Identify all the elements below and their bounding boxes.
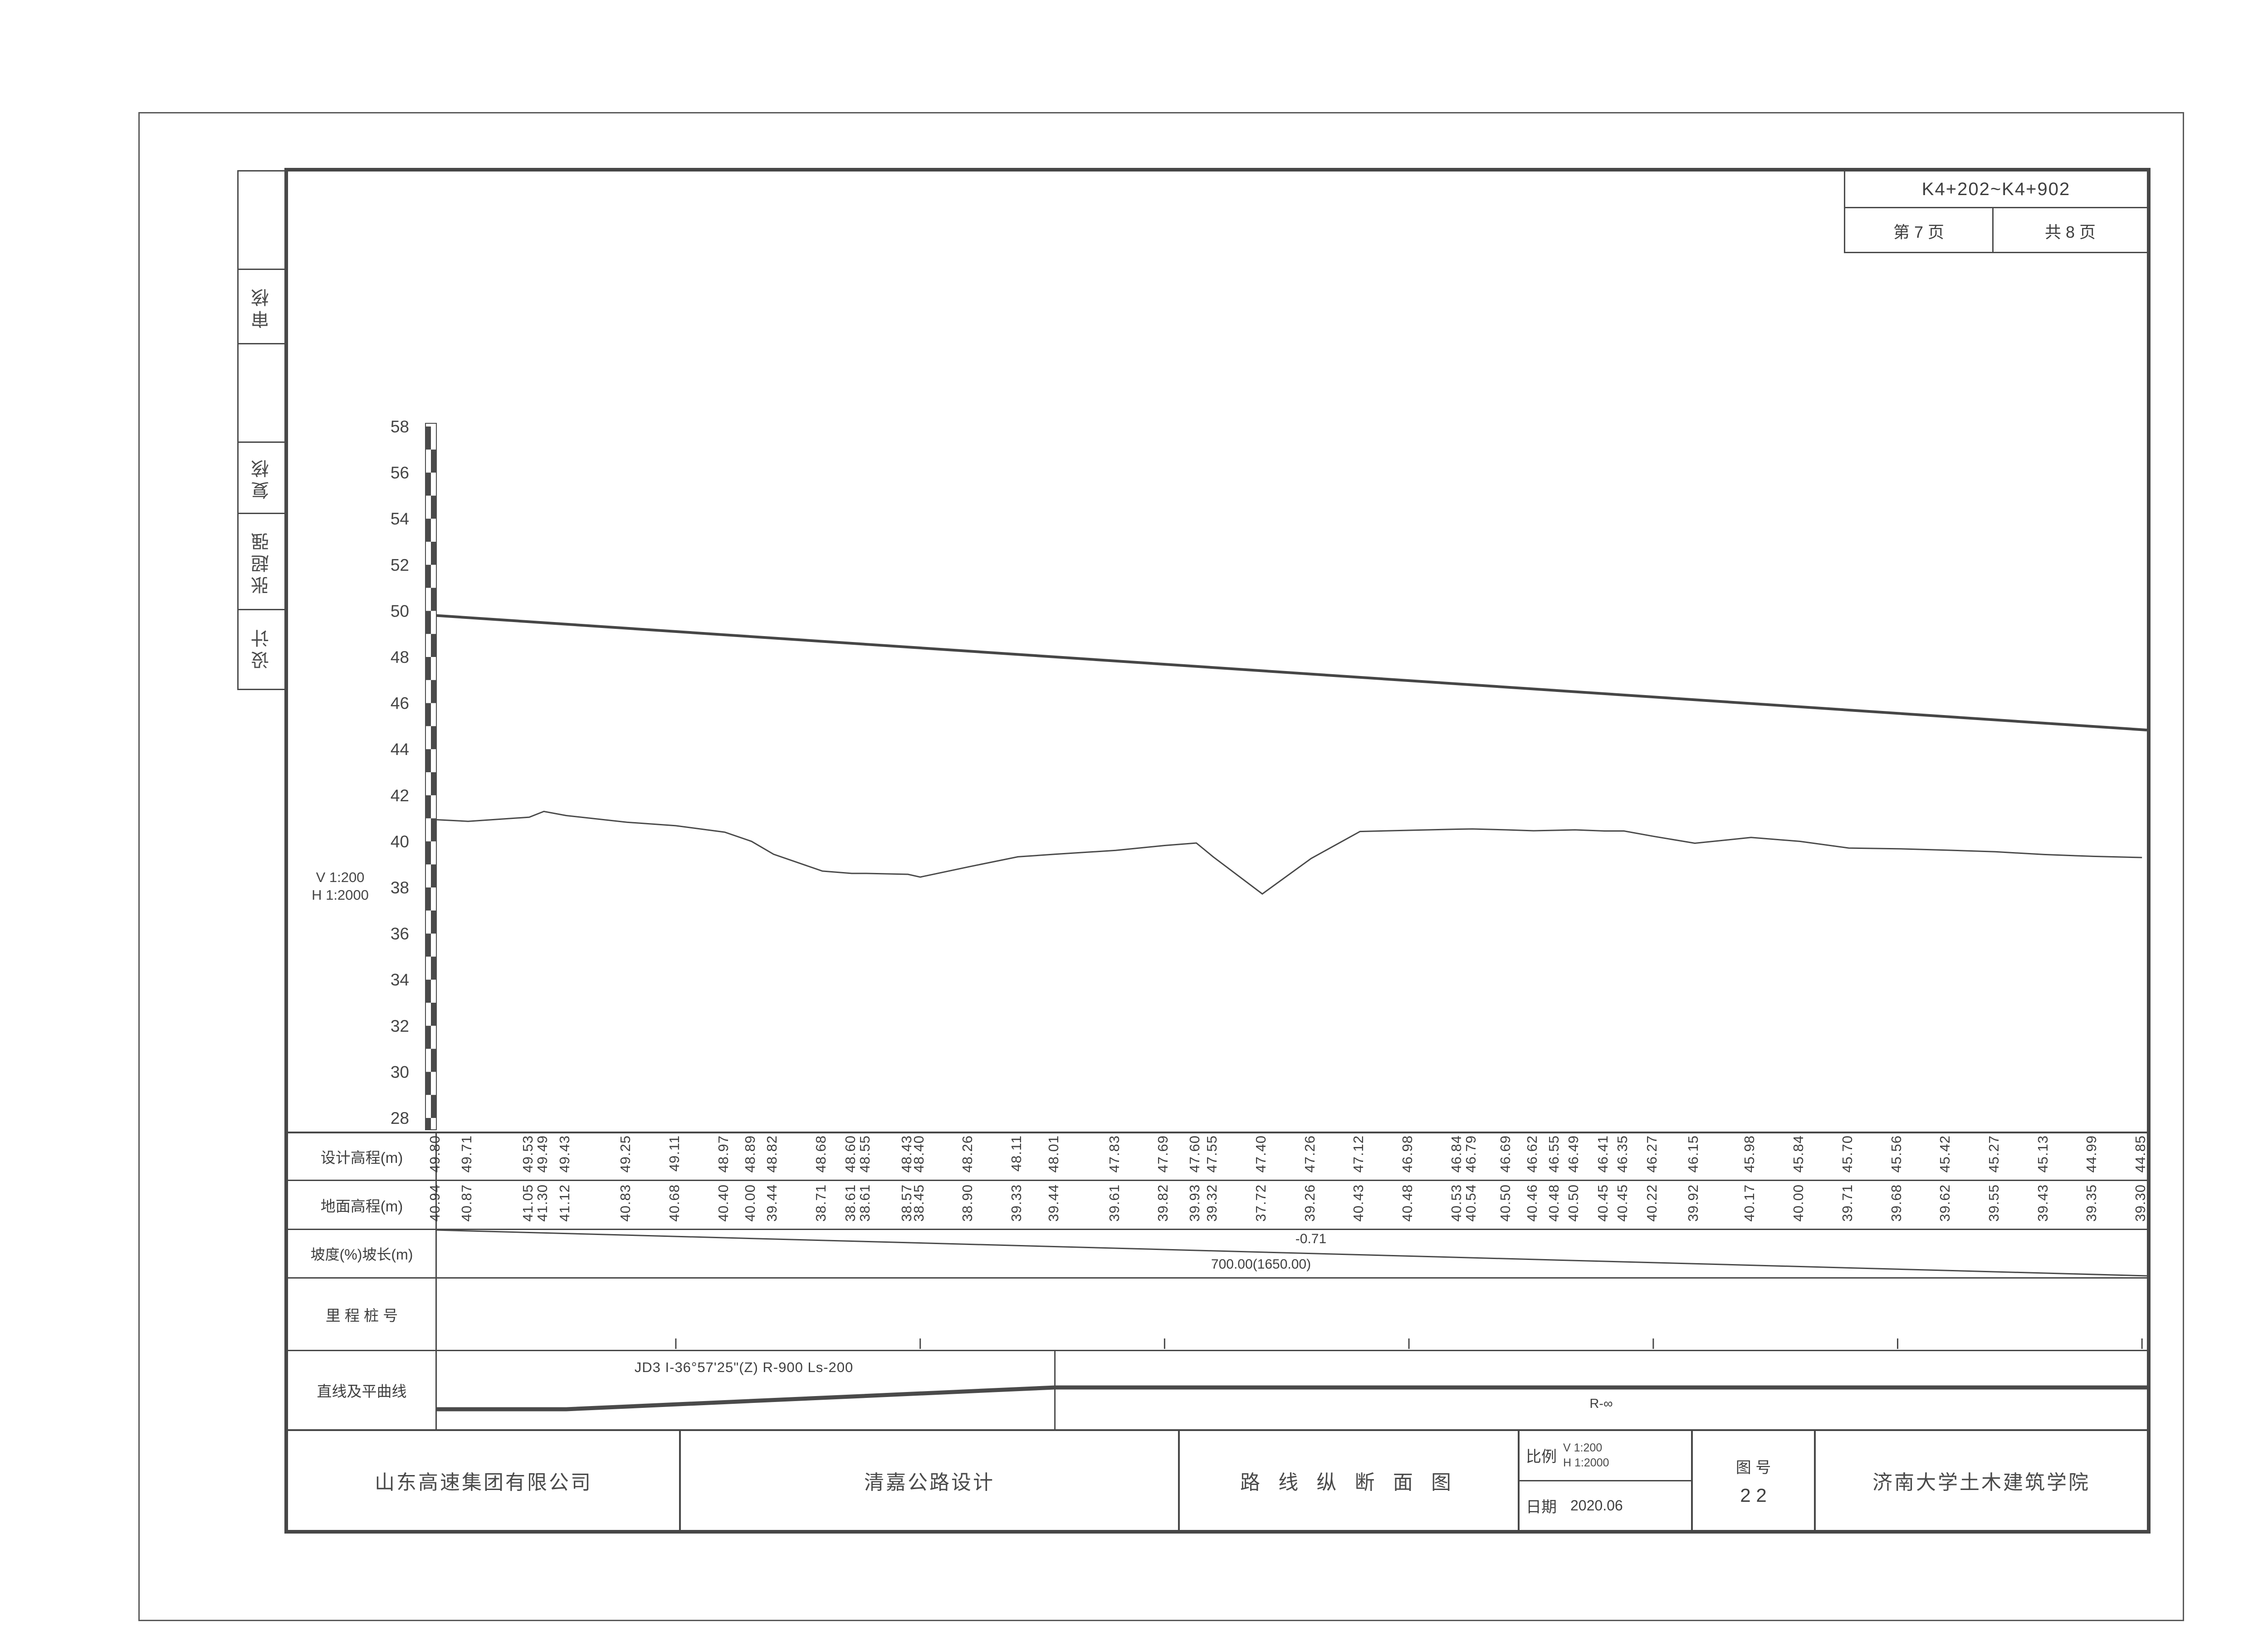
ground-elevation-value: 40.00 <box>1791 1184 1806 1222</box>
design-elevation-value: 47.26 <box>1303 1135 1318 1173</box>
design-elevation-value: 48.11 <box>1009 1135 1024 1171</box>
design-elevation-value: 49.43 <box>557 1135 572 1173</box>
design-elevation-value: 48.01 <box>1046 1135 1061 1173</box>
tangent-label: R-∞ <box>1551 1397 1651 1412</box>
design-elevation-value: 46.55 <box>1547 1135 1562 1173</box>
ground-elevation-value: 40.54 <box>1464 1184 1479 1222</box>
design-elevation-value: 48.89 <box>743 1135 758 1173</box>
ground-elevation-value: 40.48 <box>1547 1184 1562 1222</box>
ground-elevation-value: 39.35 <box>2084 1184 2099 1222</box>
ground-elevation-value: 41.05 <box>521 1184 536 1222</box>
ground-elevation-value: 40.22 <box>1645 1184 1660 1222</box>
ground-elevation-value: 39.61 <box>1107 1184 1122 1222</box>
institute-name: 济南大学土木建筑学院 <box>1872 1466 2090 1495</box>
signature-cell-blank-2 <box>239 344 285 443</box>
design-elevation-value: 47.69 <box>1156 1135 1171 1173</box>
ground-elevation-value: 39.62 <box>1938 1184 1953 1222</box>
ground-elevation-value: 39.82 <box>1156 1184 1171 1222</box>
ground-elevation-value: 40.68 <box>667 1184 682 1222</box>
ground-elevation-value: 40.46 <box>1525 1184 1540 1222</box>
design-elevation-value: 46.84 <box>1449 1135 1464 1173</box>
header-box: K4+202~K4+902 第 7 页 共 8 页 <box>1844 172 2147 253</box>
design-elevation-value: 47.60 <box>1188 1135 1202 1173</box>
design-elevation-value: 49.53 <box>521 1135 536 1173</box>
designer-label: 设计 <box>249 626 275 669</box>
design-elevation-value: 45.27 <box>1987 1135 2002 1173</box>
ground-elevation-value: 39.43 <box>2036 1184 2051 1222</box>
ground-elevation-value: 41.12 <box>557 1184 572 1222</box>
scale-note-h: H 1:2000 <box>290 887 390 904</box>
title-block-project: 清嘉公路设计 <box>679 1431 1178 1530</box>
project-name: 清嘉公路设计 <box>864 1466 995 1495</box>
ground-elevation-value: 40.87 <box>459 1184 474 1222</box>
design-elevation-value: 46.79 <box>1464 1135 1479 1173</box>
table-line <box>288 1229 2147 1230</box>
ground-elevation-value: 40.83 <box>618 1184 633 1222</box>
table-line <box>288 1180 2147 1181</box>
design-elevation-value: 48.55 <box>858 1135 873 1173</box>
ground-elevation-value: 39.44 <box>1046 1184 1061 1222</box>
design-elevation-value: 47.83 <box>1107 1135 1122 1173</box>
design-elevation-value: 46.35 <box>1615 1135 1630 1173</box>
row-label-text: 直线及平曲线 <box>317 1379 407 1401</box>
scale-label: 比例 <box>1526 1444 1557 1466</box>
inner-border <box>284 168 2151 1534</box>
ground-elevation-value: 40.48 <box>1400 1184 1415 1222</box>
signature-cell-reviewer: 审核 <box>239 270 285 344</box>
title-block-institute: 济南大学土木建筑学院 <box>1814 1431 2147 1530</box>
design-elevation-value: 46.69 <box>1498 1135 1513 1173</box>
design-elevation-value: 46.49 <box>1566 1135 1581 1173</box>
row-label-ground-elevation: 地面高程(m) <box>288 1181 435 1229</box>
ground-elevation-value: 38.61 <box>858 1184 873 1222</box>
design-elevation-value: 44.85 <box>2133 1135 2148 1173</box>
profile-drawing-sheet: 审核 复核 张超强 设计 K4+202~K4+902 第 7 页 共 8 页 V… <box>0 0 2268 1642</box>
title-block: 山东高速集团有限公司 清嘉公路设计 路 线 纵 断 面 图 比例 V 1:200… <box>288 1429 2147 1530</box>
design-elevation-value: 46.27 <box>1645 1135 1660 1173</box>
date-value: 2020.06 <box>1570 1497 1623 1514</box>
row-label-station: 里 程 桩 号 <box>288 1279 435 1350</box>
table-label-divider <box>435 1132 437 1429</box>
row-label-design-elevation: 设计高程(m) <box>288 1133 435 1180</box>
tangent-label-text: R-∞ <box>1589 1397 1613 1411</box>
grade-value: -0.71 <box>1270 1231 1352 1247</box>
ground-elevation-value: 38.90 <box>960 1184 975 1222</box>
ground-elevation-value: 39.92 <box>1686 1184 1701 1222</box>
design-elevation-value: 45.84 <box>1791 1135 1806 1173</box>
ground-elevation-value: 40.94 <box>428 1184 443 1222</box>
title-block-drawing-title: 路 线 纵 断 面 图 <box>1178 1431 1518 1530</box>
design-elevation-value: 49.11 <box>667 1135 682 1171</box>
ground-elevation-value: 40.40 <box>716 1184 731 1222</box>
page-total: 共 8 页 <box>1994 208 2147 253</box>
ground-elevation-value: 40.50 <box>1566 1184 1581 1222</box>
ground-elevation-value: 38.45 <box>912 1184 927 1222</box>
row-label-grade: 坡度(%)坡长(m) <box>288 1230 435 1277</box>
row-label-alignment: 直线及平曲线 <box>288 1351 435 1429</box>
ground-elevation-value: 40.53 <box>1449 1184 1464 1222</box>
ground-elevation-value: 39.30 <box>2133 1184 2148 1222</box>
title-block-company: 山东高速集团有限公司 <box>288 1431 679 1530</box>
design-elevation-value: 47.55 <box>1205 1135 1220 1173</box>
ground-elevation-value: 39.32 <box>1205 1184 1220 1222</box>
ground-elevation-value: 39.93 <box>1188 1184 1202 1222</box>
design-elevation-value: 44.99 <box>2084 1135 2099 1173</box>
figure-number: 2 2 <box>1740 1485 1766 1506</box>
ground-elevation-value: 37.72 <box>1254 1184 1269 1222</box>
station-range-text: K4+202~K4+902 <box>1922 179 2070 200</box>
scale-v-value: V 1:200 <box>1563 1441 1609 1456</box>
design-elevation-value: 45.98 <box>1742 1135 1757 1173</box>
title-block-figure: 图 号 2 2 <box>1691 1431 1814 1530</box>
row-label-text: 坡度(%)坡长(m) <box>311 1243 413 1264</box>
designer-name: 张超强 <box>249 529 275 594</box>
ground-elevation-value: 39.55 <box>1987 1184 2002 1222</box>
ground-elevation-value: 39.68 <box>1889 1184 1904 1222</box>
table-line <box>288 1132 2147 1133</box>
design-elevation-value: 48.26 <box>960 1135 975 1173</box>
ground-elevation-value: 38.71 <box>814 1184 829 1222</box>
design-elevation-value: 47.40 <box>1254 1135 1269 1173</box>
scale-note: V 1:200 H 1:2000 <box>290 869 390 904</box>
design-elevation-value: 46.15 <box>1686 1135 1701 1173</box>
design-elevation-value: 48.60 <box>843 1135 858 1173</box>
design-elevation-value: 49.80 <box>428 1135 443 1173</box>
row-label-text: 里 程 桩 号 <box>326 1304 398 1325</box>
page-number-text: 第 7 页 <box>1893 219 1944 243</box>
design-elevation-value: 46.41 <box>1596 1135 1611 1173</box>
date-label: 日期 <box>1526 1495 1557 1517</box>
ground-elevation-value: 40.00 <box>743 1184 758 1222</box>
design-elevation-value: 49.49 <box>535 1135 550 1173</box>
ground-elevation-value: 41.30 <box>535 1184 550 1222</box>
drawing-title: 路 线 纵 断 面 图 <box>1240 1466 1457 1495</box>
curve-label: JD3 I-36°57'25"(Z) R-900 Ls-200 <box>585 1359 903 1376</box>
signature-strip: 审核 复核 张超强 设计 <box>237 170 286 690</box>
design-elevation-value: 48.97 <box>716 1135 731 1173</box>
design-elevation-value: 47.12 <box>1351 1135 1366 1173</box>
curve-label-text: JD3 I-36°57'25"(Z) R-900 Ls-200 <box>635 1359 853 1375</box>
signature-cell-checker: 复核 <box>239 443 285 514</box>
company-name: 山东高速集团有限公司 <box>375 1466 592 1495</box>
ground-elevation-value: 40.17 <box>1742 1184 1757 1222</box>
page-total-text: 共 8 页 <box>2045 219 2096 243</box>
reviewer-label: 审核 <box>249 285 275 328</box>
ground-elevation-value: 39.71 <box>1840 1184 1855 1222</box>
ground-elevation-value: 40.50 <box>1498 1184 1513 1222</box>
signature-cell-name: 张超强 <box>239 514 285 610</box>
design-elevation-value: 45.13 <box>2036 1135 2051 1173</box>
ground-elevation-value: 39.33 <box>1009 1184 1024 1222</box>
checker-label: 复核 <box>249 456 275 500</box>
ground-elevation-value: 40.43 <box>1351 1184 1366 1222</box>
design-elevation-value: 45.56 <box>1889 1135 1904 1173</box>
signature-cell-blank-1 <box>239 172 285 270</box>
ground-elevation-value: 38.61 <box>843 1184 858 1222</box>
title-block-scale-date: 比例 V 1:200 H 1:2000 日期 2020.06 <box>1518 1431 1691 1530</box>
ground-elevation-value: 40.45 <box>1596 1184 1611 1222</box>
scale-h-value: H 1:2000 <box>1563 1456 1609 1470</box>
table-line <box>288 1350 2147 1351</box>
table-line <box>288 1277 2147 1279</box>
design-elevation-value: 48.82 <box>765 1135 780 1173</box>
ground-elevation-value: 39.26 <box>1303 1184 1318 1222</box>
design-elevation-value: 45.70 <box>1840 1135 1855 1173</box>
design-elevation-value: 45.42 <box>1938 1135 1953 1173</box>
design-elevation-value: 48.40 <box>912 1135 927 1173</box>
ground-elevation-value: 40.45 <box>1615 1184 1630 1222</box>
design-elevation-value: 46.98 <box>1400 1135 1415 1173</box>
page-number: 第 7 页 <box>1845 208 1994 253</box>
design-elevation-value: 46.62 <box>1525 1135 1540 1173</box>
row-label-text: 地面高程(m) <box>321 1194 403 1216</box>
grade-length: 700.00(1650.00) <box>1179 1257 1343 1272</box>
ground-elevation-value: 39.44 <box>765 1184 780 1222</box>
station-range: K4+202~K4+902 <box>1845 172 2147 208</box>
design-elevation-value: 48.68 <box>814 1135 829 1173</box>
row-label-text: 设计高程(m) <box>321 1146 403 1167</box>
grade-value-text: -0.71 <box>1295 1231 1326 1246</box>
design-elevation-value: 49.25 <box>618 1135 633 1173</box>
scale-note-v: V 1:200 <box>290 869 390 887</box>
signature-cell-designer: 设计 <box>239 610 285 685</box>
grade-length-text: 700.00(1650.00) <box>1211 1257 1311 1272</box>
figure-label: 图 号 <box>1736 1455 1771 1477</box>
design-elevation-value: 49.71 <box>459 1135 474 1173</box>
